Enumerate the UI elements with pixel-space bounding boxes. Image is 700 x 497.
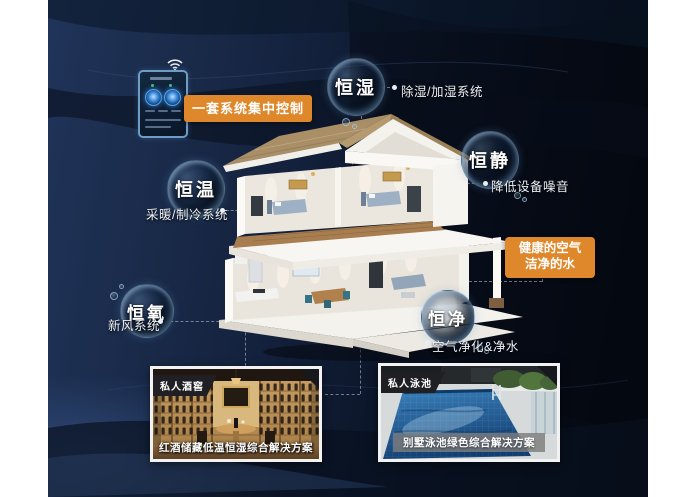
wine-cellar-card: 私人酒窖 红酒储藏低温恒湿综合解决方案 xyxy=(150,366,322,462)
panel-header-bar xyxy=(150,77,172,80)
bubble-deco xyxy=(522,197,527,202)
feature-desc-oxygen: 新风系统 xyxy=(108,315,160,334)
pool-caption: 别墅泳池绿色综合解决方案 xyxy=(393,433,545,452)
card-corner-ribbon xyxy=(299,369,319,389)
wine-cellar-caption: 红酒储藏低温恒湿综合解决方案 xyxy=(153,440,319,455)
bubble-deco xyxy=(342,118,350,126)
highlight-line2: 洁净的水 xyxy=(505,256,595,272)
bubble-deco xyxy=(119,284,124,289)
bubble-quiet-label: 恒静 xyxy=(469,147,511,173)
bubble-deco xyxy=(352,124,357,129)
feature-desc-quiet: 降低设备噪音 xyxy=(491,176,569,195)
panel-row xyxy=(158,110,168,112)
feature-desc-purity: 空气净化&净水 xyxy=(432,336,519,355)
panel-dial xyxy=(164,89,181,106)
dashed-connector xyxy=(325,394,360,395)
dark-canvas: 一套系统集中控制 恒湿 恒静 恒温 恒氧 恒净 除湿/加湿系统 降低设备噪音 采 xyxy=(48,0,648,497)
panel-led xyxy=(169,84,172,87)
connector-dot xyxy=(158,319,163,324)
panel-dial xyxy=(145,89,162,106)
bubble-humidity-label: 恒湿 xyxy=(335,74,377,100)
wifi-icon xyxy=(166,56,184,71)
bubble-deco xyxy=(110,292,118,300)
control-label: 一套系统集中控制 xyxy=(184,95,312,122)
panel-row xyxy=(145,126,171,128)
connector-dot xyxy=(392,85,397,90)
infographic-stage: 一套系统集中控制 恒湿 恒静 恒温 恒氧 恒净 除湿/加湿系统 降低设备噪音 采 xyxy=(0,0,700,497)
pool-tag: 私人泳池 xyxy=(381,372,445,393)
panel-row xyxy=(145,119,181,121)
connector-dot xyxy=(425,340,430,345)
panel-led xyxy=(151,84,154,87)
feature-desc-humidity: 除湿/加湿系统 xyxy=(401,81,483,100)
pool-card: 私人泳池 别墅泳池绿色综合解决方案 xyxy=(378,363,560,462)
feature-desc-temperature: 采暖/制冷系统 xyxy=(146,204,228,223)
highlight-line1: 健康的空气 xyxy=(505,240,595,256)
highlight-box: 健康的空气 洁净的水 xyxy=(505,237,595,278)
bubble-temperature-label: 恒温 xyxy=(175,176,217,202)
panel-row xyxy=(171,110,181,112)
bubble-humidity: 恒湿 xyxy=(327,58,385,116)
smart-control-panel xyxy=(138,70,188,138)
connector-dot xyxy=(220,208,225,213)
card-corner-ribbon xyxy=(537,366,557,386)
bubble-purity-label: 恒净 xyxy=(428,305,468,330)
wine-cellar-tag: 私人酒窖 xyxy=(153,375,217,396)
connector-dot xyxy=(483,181,488,186)
panel-row xyxy=(145,110,155,112)
